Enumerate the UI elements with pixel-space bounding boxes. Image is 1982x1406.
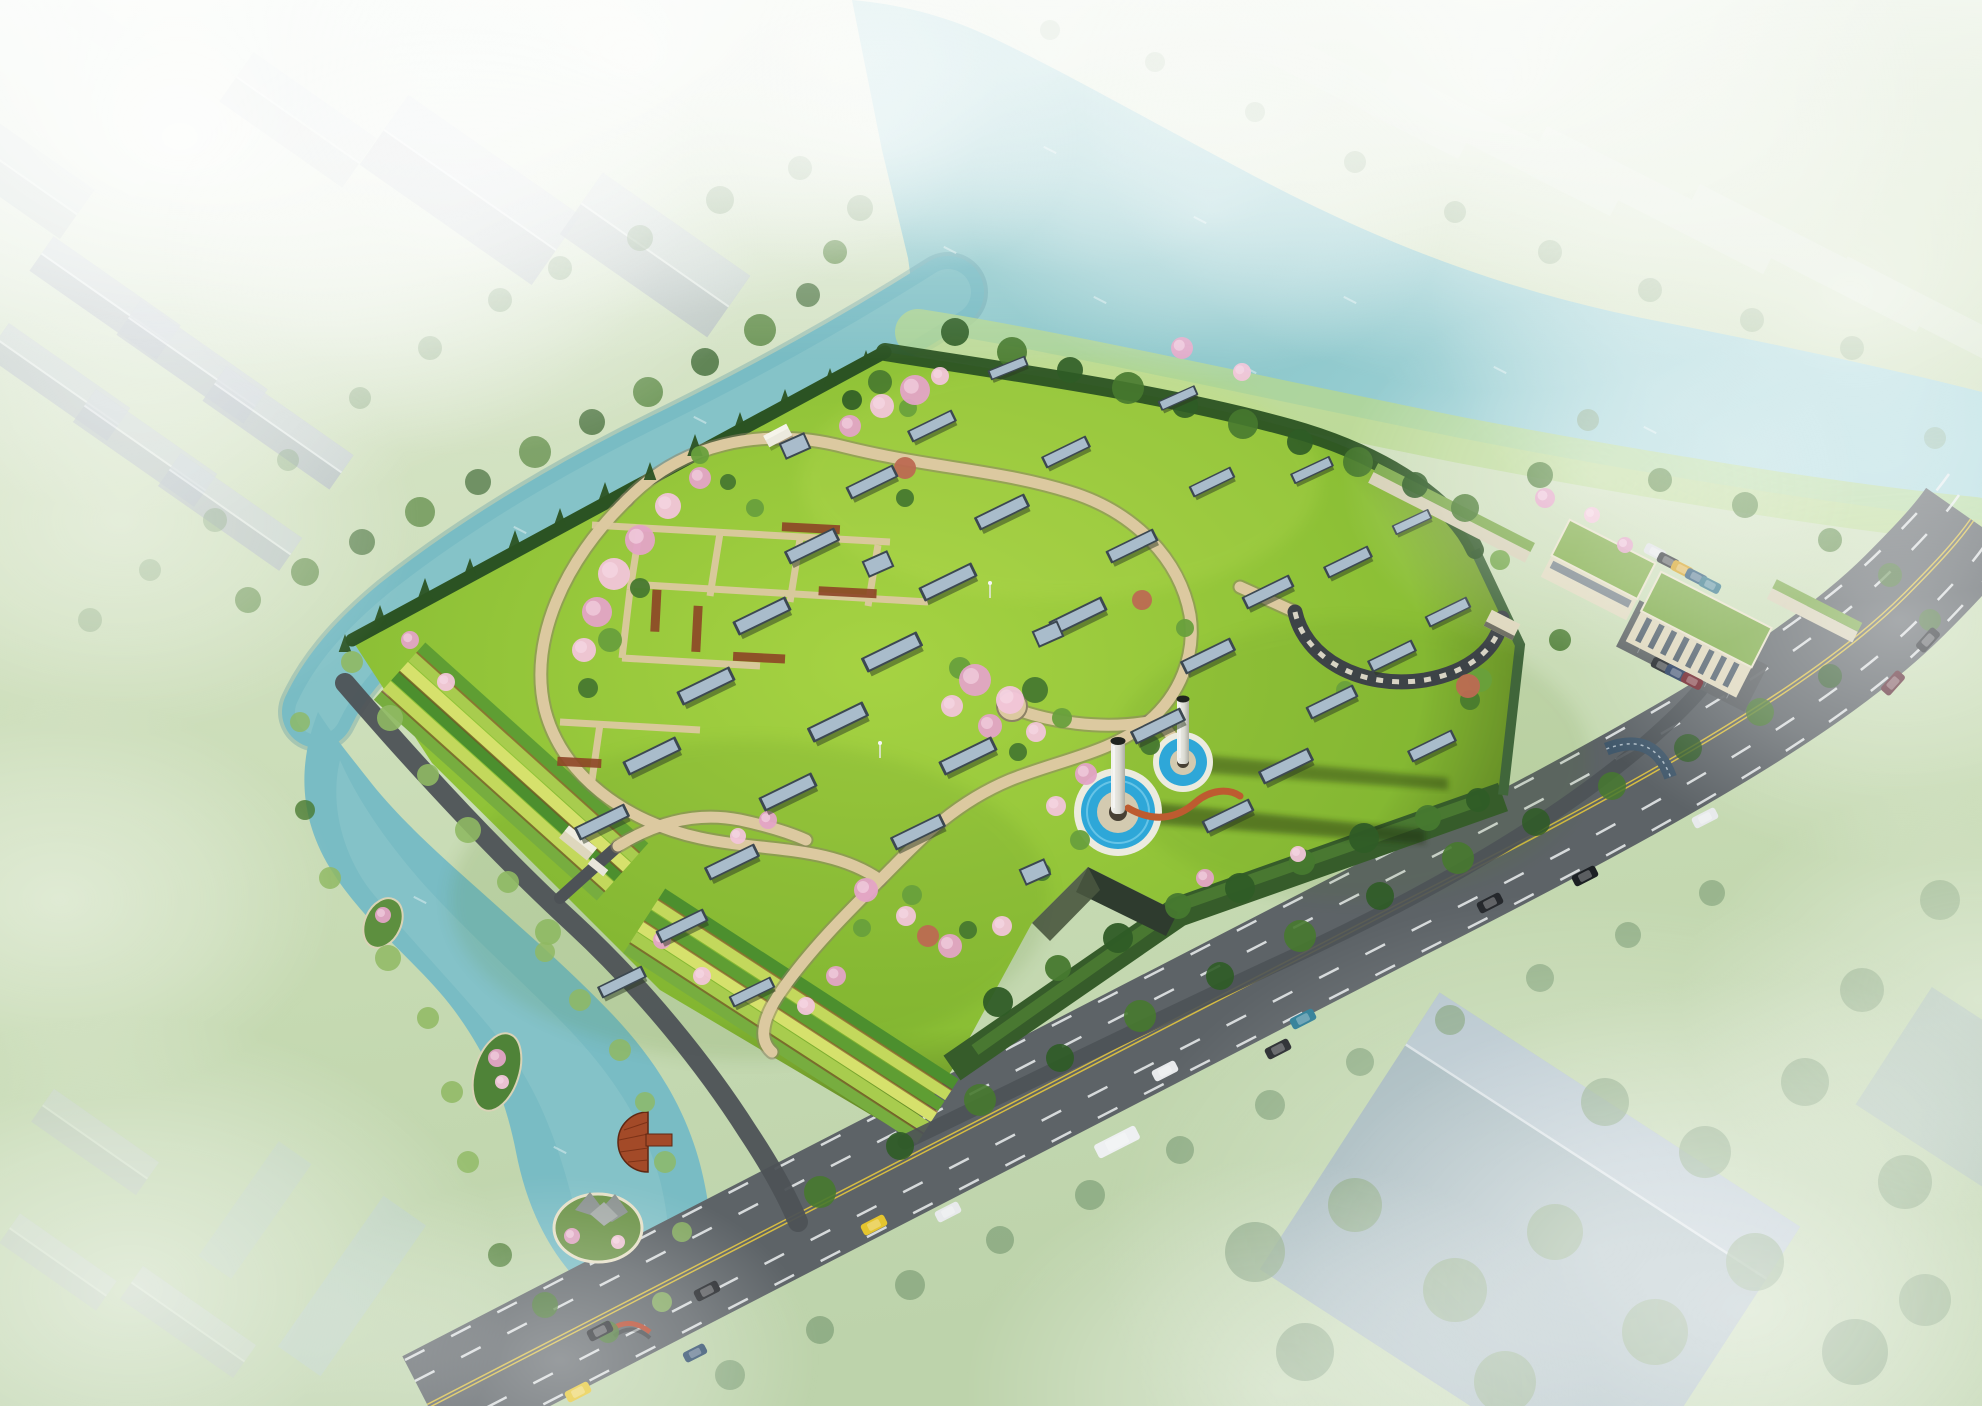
tree (1176, 619, 1194, 637)
blossom-highlight (995, 919, 1005, 929)
tree (1112, 372, 1144, 404)
tree (465, 469, 491, 495)
tree (1124, 1000, 1156, 1032)
blossom-highlight (377, 909, 385, 917)
aerial-site-rendering (0, 0, 1982, 1406)
tree (720, 474, 736, 490)
tree (1284, 920, 1316, 952)
blossom-highlight (857, 881, 869, 893)
blossom-highlight (981, 717, 993, 729)
wind-tower-large (1111, 737, 1126, 814)
blossom-highlight (899, 909, 909, 919)
tree (1206, 962, 1234, 990)
tree (746, 499, 764, 517)
tree (1287, 429, 1313, 455)
tree (377, 705, 403, 731)
fog-patch (1340, 293, 1860, 667)
tree (1225, 873, 1255, 903)
blossom-highlight (842, 418, 853, 429)
blossom-highlight (1000, 690, 1014, 704)
tree (886, 1132, 914, 1160)
tree (417, 1007, 439, 1029)
tree (1009, 743, 1027, 761)
tree (1466, 788, 1490, 812)
blossom-tree (1456, 674, 1480, 698)
blossom-highlight (695, 969, 704, 978)
tree (535, 942, 555, 962)
blossom-highlight (933, 369, 942, 378)
tree (455, 817, 481, 843)
blossom-highlight (944, 698, 955, 709)
tree (535, 919, 561, 945)
blossom-tree (917, 925, 939, 947)
blossom-highlight (602, 562, 618, 578)
tree (895, 1270, 925, 1300)
tree (1103, 923, 1133, 953)
blossom-highlight (732, 830, 740, 838)
tree (691, 446, 709, 464)
tree (896, 489, 914, 507)
blossom-highlight (1198, 871, 1207, 880)
wind-tower-small (1177, 696, 1190, 765)
blossom-highlight (575, 641, 587, 653)
blossom-highlight (658, 496, 671, 509)
tree (598, 628, 622, 652)
blossom-highlight (1078, 766, 1089, 777)
tree (1165, 893, 1191, 919)
blossom-highlight (403, 633, 412, 642)
blossom-highlight (1292, 848, 1300, 856)
tree (1046, 1044, 1074, 1072)
tree (1442, 842, 1474, 874)
tree (983, 987, 1013, 1017)
tree (1057, 357, 1083, 383)
tree (959, 921, 977, 939)
blossom-highlight (692, 470, 703, 481)
tree (902, 885, 922, 905)
blossom-highlight (904, 379, 919, 394)
tree (986, 1226, 1014, 1254)
blossom-highlight (497, 1077, 504, 1084)
tree (964, 1084, 996, 1116)
tree (1070, 830, 1090, 850)
blossom-tree (1132, 590, 1152, 610)
tree (1366, 882, 1394, 910)
blossom-highlight (629, 529, 644, 544)
tree (630, 578, 650, 598)
tree (1022, 677, 1048, 703)
blossom-highlight (1029, 725, 1039, 735)
blossom-highlight (829, 969, 839, 979)
rendering-canvas (0, 0, 1982, 1406)
tree (497, 871, 519, 893)
tree (290, 712, 310, 732)
tree (1522, 808, 1550, 836)
tree (1349, 823, 1379, 853)
tree (578, 678, 598, 698)
blossom-highlight (873, 397, 885, 409)
blossom-highlight (799, 999, 808, 1008)
tree (1052, 708, 1072, 728)
tree (609, 1039, 631, 1061)
tree (635, 1092, 655, 1112)
tree (1228, 409, 1258, 439)
blossom-highlight (490, 1051, 499, 1060)
tree (654, 1151, 676, 1173)
tree (842, 390, 862, 410)
tree (441, 1081, 463, 1103)
tree (1045, 955, 1071, 981)
tree (868, 370, 892, 394)
tree (804, 1176, 836, 1208)
tree (375, 945, 401, 971)
tree (569, 989, 591, 1011)
tree (417, 764, 439, 786)
tree (1415, 805, 1441, 831)
blossom-highlight (1049, 799, 1059, 809)
tree (853, 919, 871, 937)
tree (1598, 772, 1626, 800)
blossom-highlight (586, 601, 601, 616)
blossom-highlight (941, 937, 953, 949)
blossom-highlight (963, 668, 979, 684)
blossom-highlight (439, 675, 448, 684)
fog-patch (160, 24, 760, 456)
